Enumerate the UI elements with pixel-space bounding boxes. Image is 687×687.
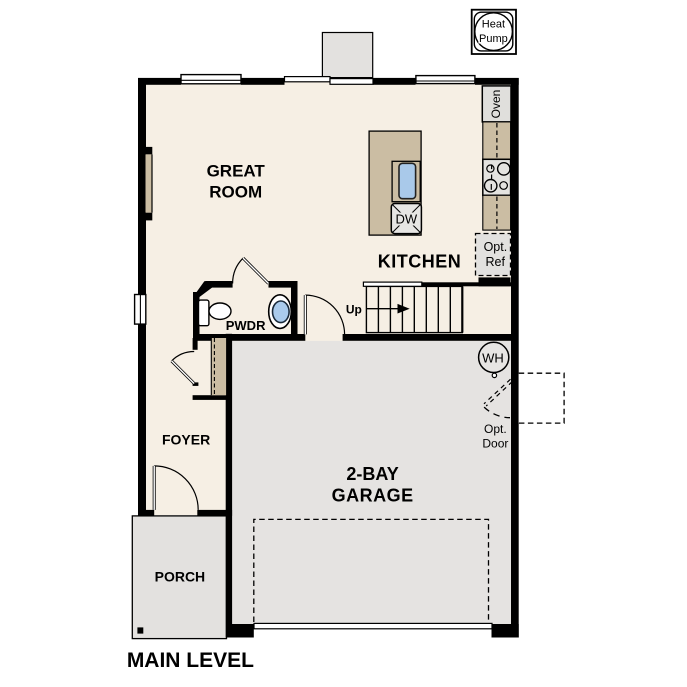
svg-text:Door: Door [482,436,508,450]
svg-text:MAIN LEVEL: MAIN LEVEL [127,649,254,672]
svg-text:Opt.: Opt. [484,422,507,436]
svg-text:Up: Up [346,303,362,317]
svg-text:Opt.: Opt. [484,240,508,254]
svg-text:PORCH: PORCH [155,568,206,584]
svg-text:KITCHEN: KITCHEN [378,251,462,271]
svg-text:DW: DW [395,211,417,226]
svg-text:WH: WH [482,351,504,366]
svg-text:2-BAY: 2-BAY [346,464,398,484]
svg-text:FOYER: FOYER [162,432,210,448]
svg-text:Ref: Ref [485,255,505,269]
svg-text:ROOM: ROOM [209,183,262,202]
svg-text:Oven: Oven [489,90,503,119]
svg-text:PWDR: PWDR [226,318,266,333]
svg-text:GREAT: GREAT [207,161,266,180]
svg-text:Heat: Heat [482,19,505,31]
svg-text:GARAGE: GARAGE [332,486,414,506]
svg-text:Pump: Pump [479,33,508,45]
